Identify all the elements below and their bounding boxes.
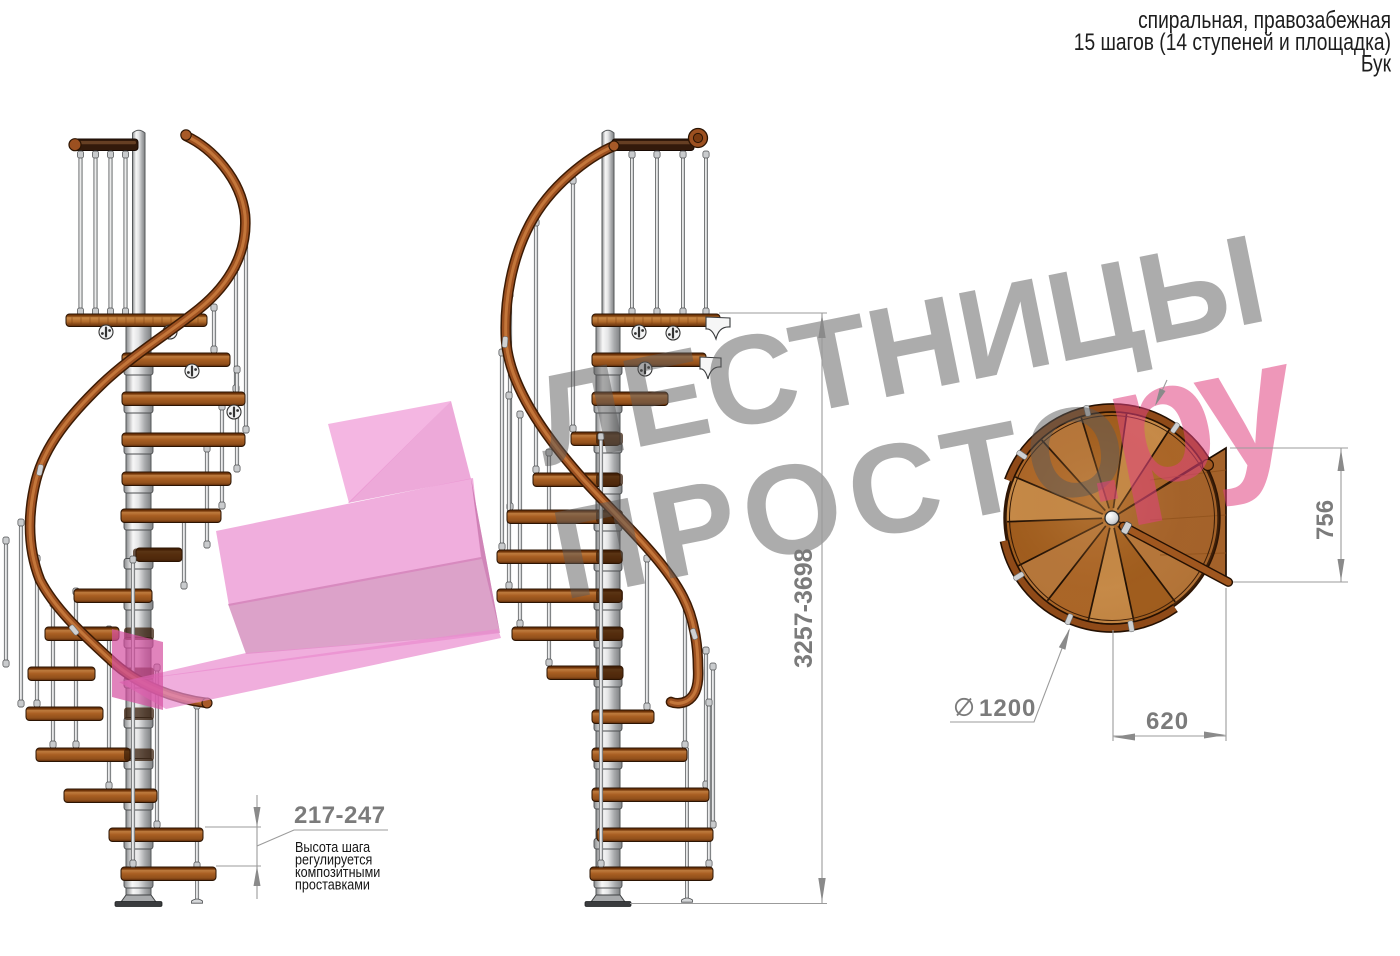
svg-text:756: 756 [1312, 500, 1339, 540]
svg-text:1200: 1200 [979, 695, 1036, 722]
svg-text:3257-3698: 3257-3698 [790, 548, 818, 668]
svg-text:15 шагов (14 ступеней и площад: 15 шагов (14 ступеней и площадка) [1074, 28, 1391, 56]
svg-text:Бук: Бук [1361, 49, 1392, 77]
svg-text:217-247: 217-247 [294, 802, 386, 829]
svg-text:620: 620 [1146, 708, 1189, 735]
svg-text:проставками: проставками [295, 875, 370, 892]
